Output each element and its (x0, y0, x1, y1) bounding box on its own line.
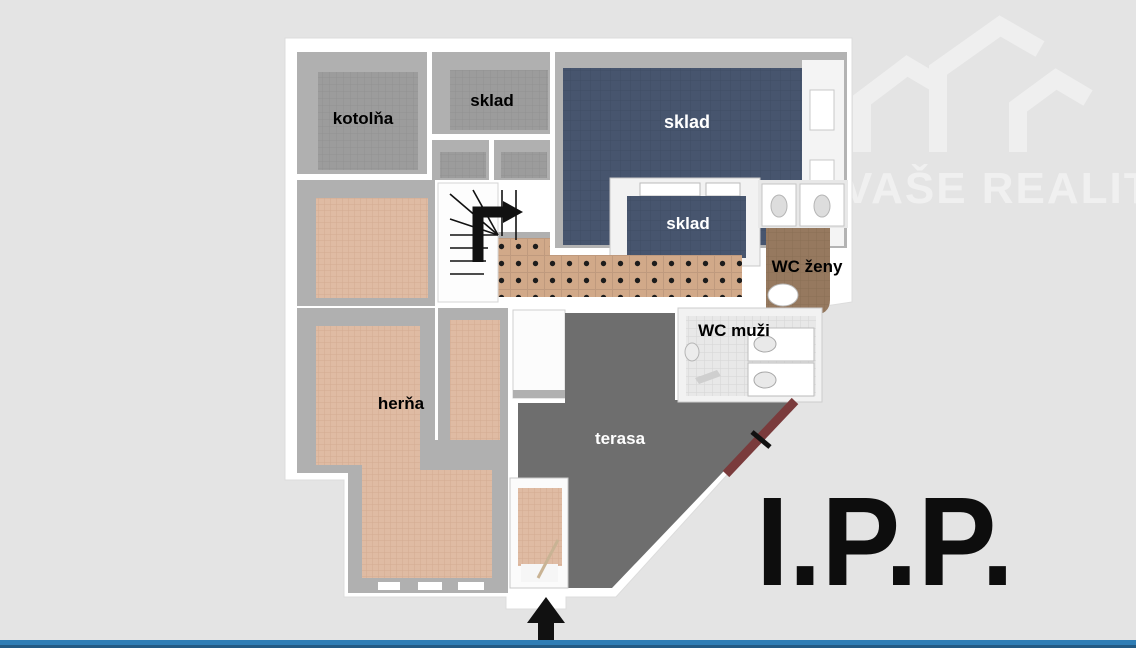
label-sklad-large: sklad (664, 112, 710, 132)
alcove (513, 310, 565, 398)
floor-plan-canvas: VAŠE REALITY (0, 0, 1136, 648)
sink-icon (685, 343, 699, 361)
toilet-icon (768, 284, 798, 306)
windows (378, 582, 484, 590)
label-sklad-small: sklad (666, 214, 709, 233)
label-kotolna: kotolňa (333, 109, 394, 128)
floor-level-label: I.P.P. (756, 471, 1014, 612)
watermark-text: VAŠE REALITY (843, 162, 1136, 213)
label-sklad-top: sklad (470, 91, 513, 110)
toilet-icon (754, 372, 776, 388)
label-wc-muzi: WC muži (698, 321, 770, 340)
floor-plan-image: VAŠE REALITY (0, 0, 1136, 648)
room-upper-left (297, 180, 435, 306)
label-wc-zeny: WC ženy (772, 257, 843, 276)
label-herna: herňa (378, 394, 425, 413)
label-terasa: terasa (595, 429, 646, 448)
bottom-accent-bar (0, 640, 1136, 648)
entrance-room (510, 478, 568, 588)
